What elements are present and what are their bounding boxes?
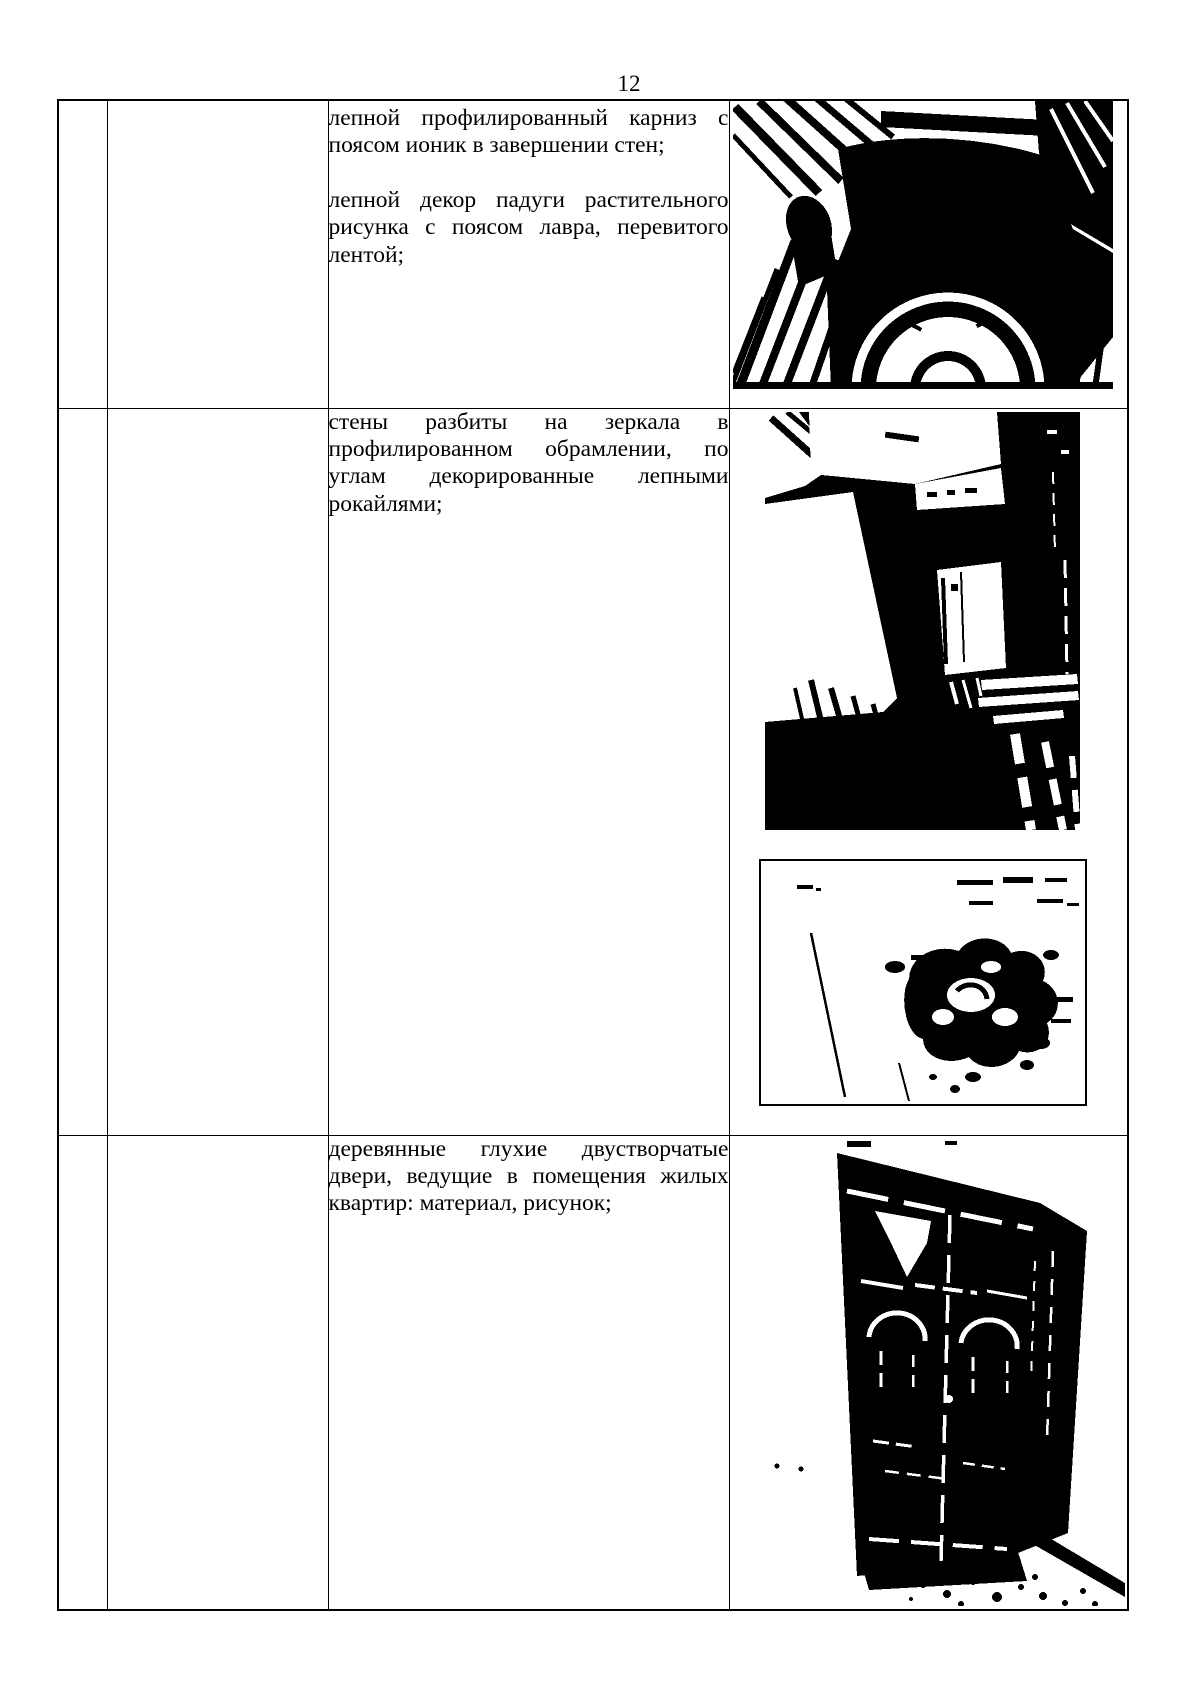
- feature-name-cell: [107, 408, 328, 1135]
- rocaille-stucco-detail-image: [759, 859, 1087, 1106]
- photo-cell: [729, 100, 1128, 408]
- row-number-cell: [58, 100, 107, 408]
- document-table: лепной профилированный карниз с поясом и…: [57, 99, 1129, 1611]
- row-number-cell: [58, 408, 107, 1135]
- scanned-document-page: 12 лепной профилированный карниз с поясо…: [0, 0, 1200, 1697]
- photo-cell: [729, 1135, 1128, 1610]
- table-row: стены разбиты на зеркала в профилированн…: [58, 408, 1128, 1135]
- wall-mirror-panels-photo: [765, 412, 1128, 830]
- wooden-double-doors-image: [735, 1141, 1125, 1606]
- description-paragraph: лепной декор падуги растительного рисунк…: [329, 187, 729, 269]
- row-number-cell: [58, 1135, 107, 1610]
- wooden-double-doors-photo: [735, 1141, 1128, 1606]
- description-cell: стены разбиты на зеркала в профилированн…: [328, 408, 729, 1135]
- wall-mirror-panels-image: [765, 412, 1080, 830]
- page-number: 12: [604, 71, 654, 97]
- feature-name-cell: [107, 100, 328, 408]
- table-row: деревянные глухие двустворчатые двери, в…: [58, 1135, 1128, 1610]
- ceiling-cove-cornice-photo: [733, 101, 1128, 389]
- description-paragraph: деревянные глухие двустворчатые двери, в…: [329, 1136, 729, 1218]
- description-paragraph: лепной профилированный карниз с поясом и…: [329, 105, 729, 160]
- description-cell: лепной профилированный карниз с поясом и…: [328, 100, 729, 408]
- feature-name-cell: [107, 1135, 328, 1610]
- ceiling-cove-cornice-image: [733, 101, 1113, 389]
- description-cell: деревянные глухие двустворчатые двери, в…: [328, 1135, 729, 1610]
- photo-cell: [729, 408, 1128, 1135]
- description-paragraph: стены разбиты на зеркала в профилированн…: [329, 409, 729, 519]
- table-row: лепной профилированный карниз с поясом и…: [58, 100, 1128, 408]
- rocaille-stucco-detail-photo: [759, 859, 1128, 1106]
